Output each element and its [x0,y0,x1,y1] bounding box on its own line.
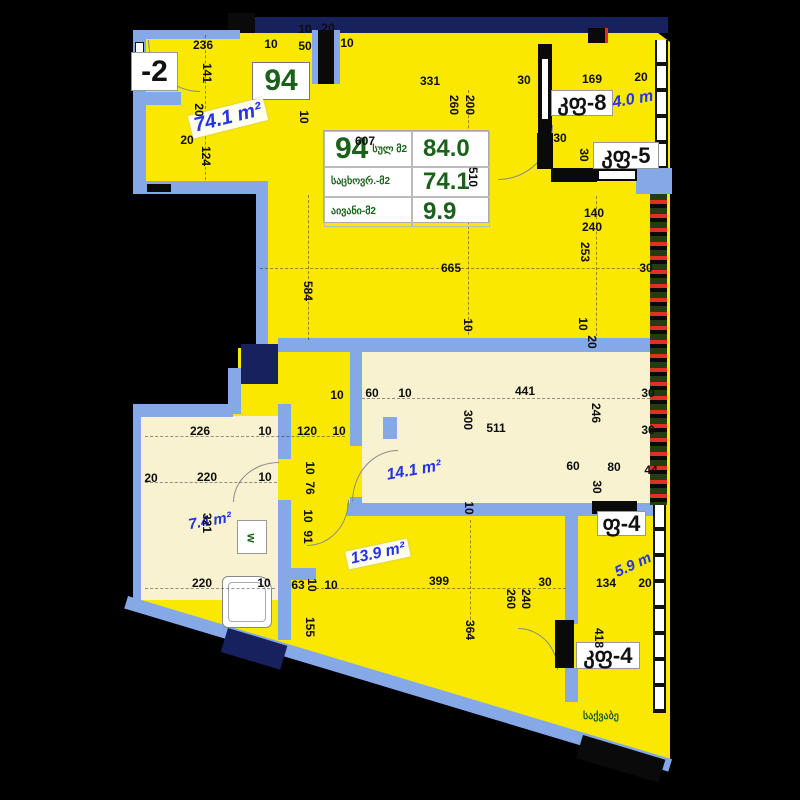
window-top-column [538,55,552,123]
dimension-label: 220 [192,576,212,590]
dimension-label: 200 [463,95,477,115]
room-bath-7 [141,416,278,600]
window-cap-top [538,44,552,56]
top-wall-vent [588,28,608,43]
dimension-label: 665 [441,261,461,275]
dimension-label: 331 [420,74,440,88]
total-area-label: სულ მ2 [372,145,407,154]
dimension-label: 10 [340,36,353,50]
dimension-label: 226 [190,424,210,438]
apartment-info-table: 94 სულ მ2 84.0 საცხოვრ.-მ2 74.1 აივანი-მ… [323,130,489,223]
total-area-value: 84.0 [412,131,490,167]
room-tag: ფ-4 [597,511,646,536]
door-leaf-balcony [555,620,574,668]
dimension-label: 20 [144,471,157,485]
dimension-label: 30 [639,261,652,275]
dimension-label: 10 [264,37,277,51]
wall-right-chunk [636,168,672,194]
room-tag: -2 [131,52,178,91]
living-area-label: საცხოვრ.-მ2 [324,167,412,197]
washing-machine-label: w [245,533,259,542]
dimension-label: 30 [590,480,604,493]
dimension-label: 44 [644,463,657,477]
dimension-label: 20 [638,576,651,590]
wall-balcony-sep-upper [565,516,578,624]
wall-notch-vertical [256,181,268,348]
dimension-label: 10 [324,578,337,592]
dimension-label: 10 [257,576,270,590]
floor-plan: w საქვაბე 94 სულ მ2 84.0 საცხოვრ.-მ2 74.… [0,0,800,800]
dimension-label: 10 [305,578,319,591]
wall-room14-step [383,417,397,439]
dimension-label: 10 [298,22,311,36]
dimension-label: 20 [634,70,647,84]
wall-room14-left-upper [350,350,362,446]
dimension-label: 124 [199,146,213,166]
dimension-label: 10 [301,509,315,522]
column-top-wall [318,30,334,84]
room-tag: კფ-4 [576,642,640,669]
wall-black-seg [147,184,171,192]
balcony-area-label: აივანი-მ2 [324,197,412,227]
dimension-label: 260 [447,95,461,115]
dimension-label: 10 [303,461,317,474]
room-tag: 94 [252,62,310,100]
window-kf5-black [551,168,597,182]
dimension-label: 10 [297,110,311,123]
dimension-label: 220 [197,470,217,484]
wall-corridor-top [278,338,658,352]
dimension-label: 240 [519,589,533,609]
dimension-label: 80 [607,460,620,474]
dimension-label: 120 [297,424,317,438]
dimension-label: 76 [303,481,317,494]
dimension-label: 236 [193,38,213,52]
dimension-label: 511 [486,421,505,435]
dimension-label: 134 [596,576,616,590]
column-top-jamb-r [334,30,340,84]
dimension-label: 50 [298,39,311,53]
dimension-label: 10 [258,424,271,438]
dimension-label: 399 [429,574,449,588]
column-top-jamb-l [312,30,318,84]
dimension-label: 240 [582,220,602,234]
dimension-label: 10 [398,386,411,400]
dimension-label: 30 [538,575,551,589]
dimension-label: 10 [332,424,345,438]
dimension-label: 30 [517,73,530,87]
dimension-label: 141 [200,63,214,83]
wall-balcony-sep-lower [565,668,578,702]
dimension-label: 10 [462,501,476,514]
dimension-label: 20 [180,133,193,147]
dimension-label: 20 [192,103,206,116]
room-tag: კფ-5 [593,142,659,169]
dimension-label: 20 [585,335,599,348]
dimension-label: 30 [577,148,591,161]
dimension-label: 30 [553,131,566,145]
dimension-label: 91 [301,530,315,543]
dimension-label: 169 [582,72,602,86]
dimension-label: 63 [291,578,304,592]
wall-bath-left [133,404,141,602]
dimension-label: 246 [589,403,603,423]
balcony-area-value: 9.9 [412,197,490,227]
dimension-label: 10 [330,388,343,402]
dimension-label: 253 [578,242,592,262]
dimension-label: 321 [200,513,214,533]
boiler-room-label: საქვაბე [583,711,619,722]
dimension-label: 140 [584,206,604,220]
door-leaf-kf8 [537,133,553,169]
dimension-label: 30 [641,386,654,400]
dimension-label: 60 [566,459,579,473]
wall-bath-top [133,404,233,417]
dimension-label: 441 [515,384,535,398]
wall-below-unit2 [133,92,181,105]
dimension-label: 607 [355,134,375,148]
dimension-label: 60 [365,386,378,400]
dimension-label: 300 [461,410,475,430]
dimension-label: 418 [592,628,606,648]
dimension-label: 10 [576,317,590,330]
dimension-label: 584 [301,281,315,301]
room-tag: კფ-8 [551,90,613,116]
dimension-label: 364 [463,620,477,640]
dimension-label: 260 [504,589,518,609]
window-strip-bottom-right [653,505,666,713]
dimension-label: 510 [466,167,480,187]
wall-bath-right-upper [278,404,291,459]
dimension-label: 10 [461,318,475,331]
dimension-label: 10 [258,470,271,484]
dimension-label: 155 [303,617,317,637]
washing-machine: w [237,520,267,554]
dimension-label: 30 [641,423,654,437]
balcony-railing-right [650,194,667,505]
column-center-left [241,344,278,384]
window-kf5-white [597,169,637,181]
dimension-label: 20 [321,21,334,35]
